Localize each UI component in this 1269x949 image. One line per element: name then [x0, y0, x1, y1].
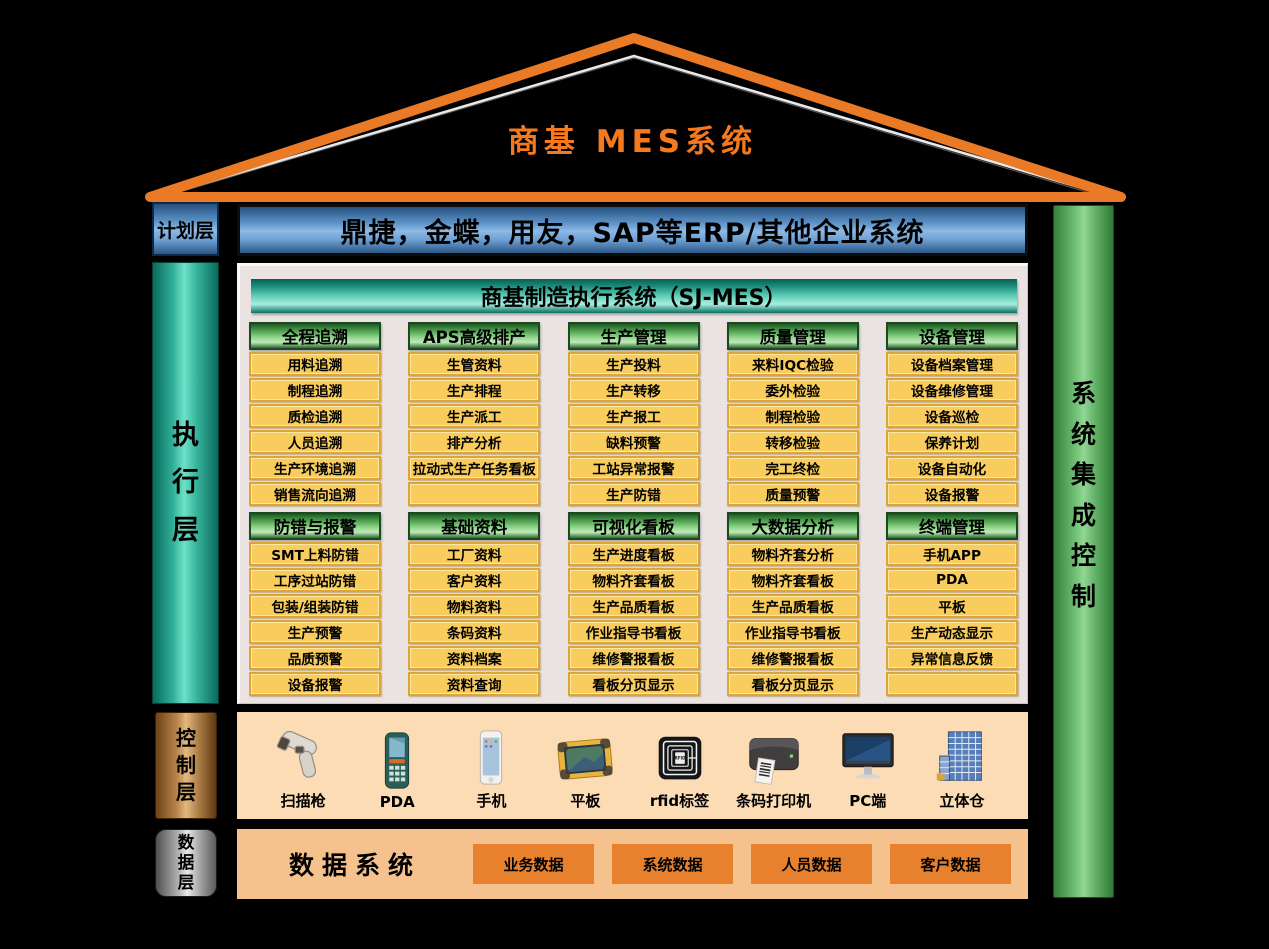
data-box: 业务数据: [473, 844, 594, 884]
module-item: 销售流向追溯: [249, 482, 381, 506]
data-box: 客户数据: [890, 844, 1011, 884]
module-header: 可视化看板: [568, 512, 700, 540]
module-item: 生产品质看板: [727, 594, 859, 618]
module-column: 大数据分析物料齐套分析物料齐套看板生产品质看板作业指导书看板维修警报看板看板分页…: [727, 512, 859, 696]
phone-icon: [460, 727, 522, 789]
module-item: 来料IQC检验: [727, 352, 859, 376]
module-header: 防错与报警: [249, 512, 381, 540]
module-column: 终端管理手机APPPDA平板生产动态显示异常信息反馈: [886, 512, 1018, 696]
module-item: 质检追溯: [249, 404, 381, 428]
module-item: 作业指导书看板: [568, 620, 700, 644]
mes-architecture-diagram: 商基 MES系统 计划层 鼎捷，金蝶，用友，SAP等ERP/其他企业系统 执 行…: [0, 0, 1269, 949]
module-item: 看板分页显示: [727, 672, 859, 696]
control-band: 扫描枪PDA手机平板RFIDrfid标签条码打印机PC端立体仓: [237, 712, 1028, 819]
module-header: 终端管理: [886, 512, 1018, 540]
module-item: 包装/组装防错: [249, 594, 381, 618]
module-item-empty: [408, 482, 540, 506]
device-label: 手机: [476, 790, 506, 811]
device-tablet: 平板: [543, 727, 627, 811]
module-item: 看板分页显示: [568, 672, 700, 696]
device-label: PDA: [380, 793, 415, 811]
module-item: 客户资料: [408, 568, 540, 592]
device-barcode-printer: 条码打印机: [732, 727, 816, 811]
module-item: 用料追溯: [249, 352, 381, 376]
module-item: 生产预警: [249, 620, 381, 644]
tablet-icon: [554, 727, 616, 789]
module-item: 品质预警: [249, 646, 381, 670]
execution-panel: 商基制造执行系统（SJ-MES） 全程追溯用料追溯制程追溯质检追溯人员追溯生产环…: [237, 263, 1028, 704]
module-item: 生产转移: [568, 378, 700, 402]
device-scanner-gun: 扫描枪: [261, 727, 345, 811]
data-box-list: 业务数据系统数据人员数据客户数据: [473, 844, 1011, 884]
module-item: 维修警报看板: [568, 646, 700, 670]
layer-label-data: 数 据 层: [155, 829, 217, 897]
device-label: 平板: [570, 790, 600, 811]
module-item: 设备报警: [886, 482, 1018, 506]
module-item: 设备巡检: [886, 404, 1018, 428]
module-item: PDA: [886, 568, 1018, 592]
module-item: 工厂资料: [408, 542, 540, 566]
module-column: 防错与报警SMT上料防错工序过站防错包装/组装防错生产预警品质预警设备报警: [249, 512, 381, 696]
data-box: 系统数据: [612, 844, 733, 884]
module-item: 工站异常报警: [568, 456, 700, 480]
module-item: 设备维修管理: [886, 378, 1018, 402]
module-column: 可视化看板生产进度看板物料齐套看板生产品质看板作业指导书看板维修警报看板看板分页…: [568, 512, 700, 696]
module-header: 生产管理: [568, 322, 700, 350]
device-rfid-tag: RFIDrfid标签: [638, 727, 722, 811]
device-label: 立体仓: [939, 790, 984, 811]
module-column: APS高级排产生管资料生产排程生产派工排产分析拉动式生产任务看板: [408, 322, 540, 506]
module-item: 设备报警: [249, 672, 381, 696]
module-item: 生产投料: [568, 352, 700, 376]
module-item: 手机APP: [886, 542, 1018, 566]
module-header: 大数据分析: [727, 512, 859, 540]
device-phone: 手机: [449, 727, 533, 811]
module-item: 质量预警: [727, 482, 859, 506]
module-column: 设备管理设备档案管理设备维修管理设备巡检保养计划设备自动化设备报警: [886, 322, 1018, 506]
module-item: 缺料预警: [568, 430, 700, 454]
module-item: 委外检验: [727, 378, 859, 402]
diagram-title: 商基 MES系统: [237, 116, 1028, 161]
module-item: 排产分析: [408, 430, 540, 454]
module-item: 资料查询: [408, 672, 540, 696]
data-system-title: 数据系统: [289, 846, 421, 882]
module-item: 保养计划: [886, 430, 1018, 454]
module-column: 基础资料工厂资料客户资料物料资料条码资料资料档案资料查询: [408, 512, 540, 696]
module-item-empty: [886, 672, 1018, 696]
pda-icon: [366, 730, 428, 792]
module-column: 质量管理来料IQC检验委外检验制程检验转移检验完工终检质量预警: [727, 322, 859, 506]
module-item: 拉动式生产任务看板: [408, 456, 540, 480]
device-label: rfid标签: [650, 790, 709, 811]
module-header: 全程追溯: [249, 322, 381, 350]
exec-row-1: 全程追溯用料追溯制程追溯质检追溯人员追溯生产环境追溯销售流向追溯APS高级排产生…: [240, 322, 1027, 506]
device-pc: PC端: [826, 727, 910, 811]
module-item: 生产进度看板: [568, 542, 700, 566]
module-item: 生产环境追溯: [249, 456, 381, 480]
device-label: PC端: [849, 790, 886, 811]
module-item: 条码资料: [408, 620, 540, 644]
layer-label-execution: 执 行 层: [152, 262, 219, 704]
module-item: 生管资料: [408, 352, 540, 376]
data-band: 数据系统 业务数据系统数据人员数据客户数据: [237, 829, 1028, 899]
module-column: 生产管理生产投料生产转移生产报工缺料预警工站异常报警生产防错: [568, 322, 700, 506]
device-warehouse: 立体仓: [920, 727, 1004, 811]
module-item: 制程追溯: [249, 378, 381, 402]
module-item: 人员追溯: [249, 430, 381, 454]
module-item: 生产排程: [408, 378, 540, 402]
device-label: 扫描枪: [281, 790, 326, 811]
module-item: 设备档案管理: [886, 352, 1018, 376]
warehouse-icon: [931, 727, 993, 789]
layer-label-control: 控 制 层: [155, 712, 217, 819]
module-header: 质量管理: [727, 322, 859, 350]
module-header: 基础资料: [408, 512, 540, 540]
module-item: 生产派工: [408, 404, 540, 428]
module-column: 全程追溯用料追溯制程追溯质检追溯人员追溯生产环境追溯销售流向追溯: [249, 322, 381, 506]
device-label: 条码打印机: [736, 790, 811, 811]
device-pda: PDA: [355, 730, 439, 811]
sjmes-header: 商基制造执行系统（SJ-MES）: [251, 279, 1017, 313]
module-item: 生产动态显示: [886, 620, 1018, 644]
layer-label-plan: 计划层: [152, 202, 219, 256]
module-item: 物料资料: [408, 594, 540, 618]
data-box: 人员数据: [751, 844, 872, 884]
module-item: 生产报工: [568, 404, 700, 428]
module-item: 平板: [886, 594, 1018, 618]
module-item: SMT上料防错: [249, 542, 381, 566]
module-item: 制程检验: [727, 404, 859, 428]
module-item: 维修警报看板: [727, 646, 859, 670]
module-item: 资料档案: [408, 646, 540, 670]
svg-text:RFID: RFID: [674, 755, 685, 760]
module-item: 物料齐套看板: [568, 568, 700, 592]
module-item: 工序过站防错: [249, 568, 381, 592]
module-item: 作业指导书看板: [727, 620, 859, 644]
module-item: 生产品质看板: [568, 594, 700, 618]
barcode-printer-icon: [743, 727, 805, 789]
exec-row-2: 防错与报警SMT上料防错工序过站防错包装/组装防错生产预警品质预警设备报警基础资…: [240, 512, 1027, 696]
system-integration-label: 系 统 集 成 控 制: [1071, 374, 1096, 617]
module-header: APS高级排产: [408, 322, 540, 350]
rfid-tag-icon: RFID: [649, 727, 711, 789]
system-integration-bar: 系 统 集 成 控 制: [1053, 205, 1114, 898]
scanner-gun-icon: [272, 727, 334, 789]
erp-systems-bar: 鼎捷，金蝶，用友，SAP等ERP/其他企业系统: [237, 204, 1028, 256]
module-item: 完工终检: [727, 456, 859, 480]
module-header: 设备管理: [886, 322, 1018, 350]
module-item: 异常信息反馈: [886, 646, 1018, 670]
module-item: 转移检验: [727, 430, 859, 454]
module-item: 物料齐套看板: [727, 568, 859, 592]
module-item: 生产防错: [568, 482, 700, 506]
pc-icon: [837, 727, 899, 789]
erp-systems-text: 鼎捷，金蝶，用友，SAP等ERP/其他企业系统: [340, 211, 924, 250]
module-item: 设备自动化: [886, 456, 1018, 480]
module-item: 物料齐套分析: [727, 542, 859, 566]
